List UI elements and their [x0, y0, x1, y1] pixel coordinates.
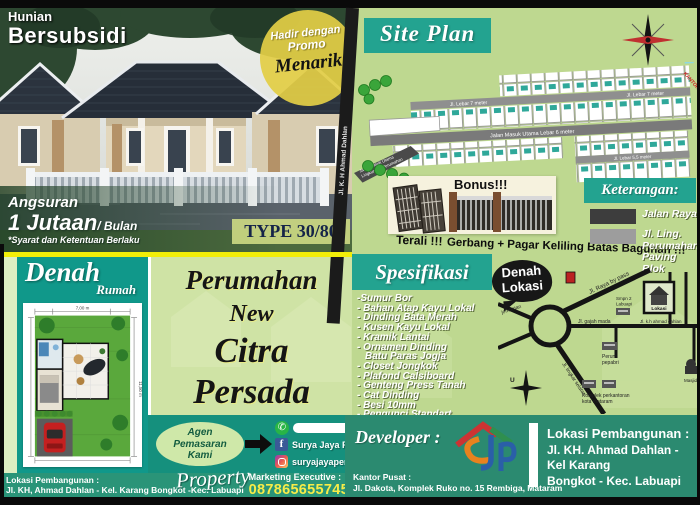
main-road-divider-label: Jl. K. H Ahmad Dahlan	[338, 127, 349, 195]
agent-label-line3: Kami	[156, 450, 244, 462]
project-title-line2: New	[151, 302, 352, 326]
bonus-caption-terali: Terali !!!	[396, 233, 443, 249]
left-accent-strip	[4, 257, 17, 473]
build-location-right: Lokasi Pembangunan : Jl. KH. Ahmad Dahla…	[547, 426, 700, 490]
floorplan-panel: Denah Rumah 7,00 m 11,50 m	[17, 257, 148, 473]
landmark-site-location: Lokasi	[644, 282, 674, 313]
specs-title-box: Spesifikasi	[352, 254, 492, 290]
svg-text:Masjid: Masjid	[684, 378, 698, 383]
project-title-line1: Perumahan	[151, 267, 352, 294]
yellow-divider-line	[0, 252, 352, 257]
location-map-title-line2: Lokasi	[492, 278, 553, 297]
site-location-label: Lokasi	[651, 306, 666, 312]
left-edge-frame	[0, 244, 4, 497]
property-script-word: Property	[175, 463, 250, 493]
road-label-7m-b: Jl. Lebar 7 meter	[626, 91, 664, 99]
floorplan-svg: 7,00 m 11,50 m	[23, 303, 142, 467]
whatsapp-icon: ✆	[275, 421, 289, 435]
installment-per: / Bulan	[97, 219, 137, 233]
developer-strip: Developer : Lokasi Pembangunan : Jl. KH.…	[345, 415, 700, 497]
instagram-icon	[275, 455, 288, 468]
installment-amount-value: 1 Jutaan	[8, 210, 97, 235]
house-render-photo: Hunian Bersubsidi Hadir dengan Promo Men…	[0, 8, 352, 252]
water-feature	[685, 62, 694, 64]
map-compass-icon: U	[510, 370, 542, 406]
project-title-panel: Perumahan New Citra Persada	[148, 257, 352, 415]
lower-left-section: Denah Rumah 7,00 m 11,50 m	[0, 257, 352, 473]
marketing-contact: Marketing Executive : 087865655745	[249, 473, 349, 497]
project-title-line4: Persada	[151, 374, 352, 409]
landmark-red-building	[566, 272, 575, 283]
landmark-school: Smpn 2 Labuapi	[616, 296, 632, 315]
legend-title: Keterangan:	[584, 178, 696, 203]
hero-label-line1: Hunian	[8, 10, 127, 24]
dimension-top: 7,00 m	[76, 306, 90, 311]
landmark-perum-pepabri: Perum pepabri	[602, 342, 619, 366]
svg-text:pepabri: pepabri	[602, 360, 619, 366]
installment-block: Angsuran 1 Jutaan/ Bulan *Syarat dan Ket…	[8, 194, 140, 247]
arrow-icon	[245, 440, 260, 448]
house-type-label: TYPE 30/80	[244, 221, 338, 242]
road-label-7m-a: Jl. Lebar 7 meter	[450, 100, 488, 108]
main-road-label: Jalan Raya	[642, 209, 697, 221]
landmark-mosque: Masjid	[684, 359, 698, 383]
compass-rose-icon	[620, 12, 676, 68]
floorplan-title: Denah Rumah	[17, 257, 148, 298]
svg-text:Smpn 2: Smpn 2	[616, 296, 632, 301]
agent-label-line1: Agen	[156, 427, 244, 439]
build-location-right-line1: Lokasi Pembangunan :	[547, 426, 700, 443]
dimension-side: 11,50 m	[138, 381, 142, 397]
facebook-icon: f	[275, 438, 288, 451]
grille-panel-2	[419, 189, 445, 233]
developer-label: Developer :	[355, 427, 440, 448]
bonus-title: Bonus!!!	[454, 177, 507, 192]
neighborhood-road-label-line1: Jl. Ling. Perumahan	[642, 229, 700, 252]
car	[44, 423, 66, 453]
legend-row-main-road: Jalan Raya	[590, 209, 700, 224]
project-title-line3: Citra	[151, 333, 352, 368]
whatsapp-number-box	[293, 423, 351, 433]
agent-label-line2: Pemasaran	[156, 439, 244, 451]
installment-terms: *Syarat dan Ketentuan Berlaku	[8, 234, 140, 247]
floorplan-drawing: 7,00 m 11,50 m	[23, 303, 142, 467]
build-location-right-line3: Bongkot - Kec. Labuapi	[547, 474, 700, 490]
site-plan-title: Site Plan	[364, 18, 491, 53]
grille-panel-1	[393, 185, 423, 232]
svg-text:Labuapi: Labuapi	[616, 302, 632, 307]
housing-brochure: Hunian Bersubsidi Hadir dengan Promo Men…	[0, 0, 700, 505]
sales-agent-panel: Agen Pemasaran Kami ✆ f Surya Jaya Persa…	[148, 415, 352, 473]
bottom-left-strip: Lokasi Pembangunan : Jl. KH, Ahmad Dahla…	[0, 473, 352, 497]
installment-amount: 1 Jutaan/ Bulan	[8, 212, 140, 234]
brochure-canvas: Hunian Bersubsidi Hadir dengan Promo Men…	[0, 8, 700, 497]
specs-list: -Sumur Bor - Bahan Atap Kayu Lokal - Din…	[357, 294, 474, 420]
neighborhood-road-swatch	[590, 229, 636, 244]
specs-title: Spesifikasi	[375, 260, 468, 285]
head-office-label: Kantor Pusat :	[353, 472, 562, 483]
marketing-phone[interactable]: 087865655745	[249, 483, 349, 498]
compass-north-label: U	[510, 377, 515, 384]
build-location-right-line2: Jl. KH. Ahmad Dahlan - Kel Karang	[547, 443, 700, 474]
bonus-box: Bonus!!!	[388, 176, 556, 234]
hero-label-line2: Bersubsidi	[8, 24, 127, 47]
main-road-swatch	[590, 209, 636, 224]
hero-label: Hunian Bersubsidi	[8, 10, 127, 47]
head-office: Kantor Pusat : Jl. Dakota, Komplek Ruko …	[353, 472, 562, 493]
svg-text:kota mataram: kota mataram	[582, 399, 613, 405]
road-label-ahmad-dahlan: Jl. k.h ahmad dahlan	[640, 319, 682, 324]
head-office-address: Jl. Dakota, Komplek Ruko no. 15 Rembiga,…	[353, 483, 562, 494]
landmark-office-complex: Komplek perkantoran kota mataram	[582, 380, 630, 405]
agent-label-oval: Agen Pemasaran Kami	[156, 422, 244, 466]
developer-logo	[445, 417, 523, 475]
road-label-gajah-mada: Jl. gajah mada	[578, 319, 611, 325]
arrow-icon-tip	[260, 434, 272, 454]
gate-fence	[449, 192, 552, 232]
